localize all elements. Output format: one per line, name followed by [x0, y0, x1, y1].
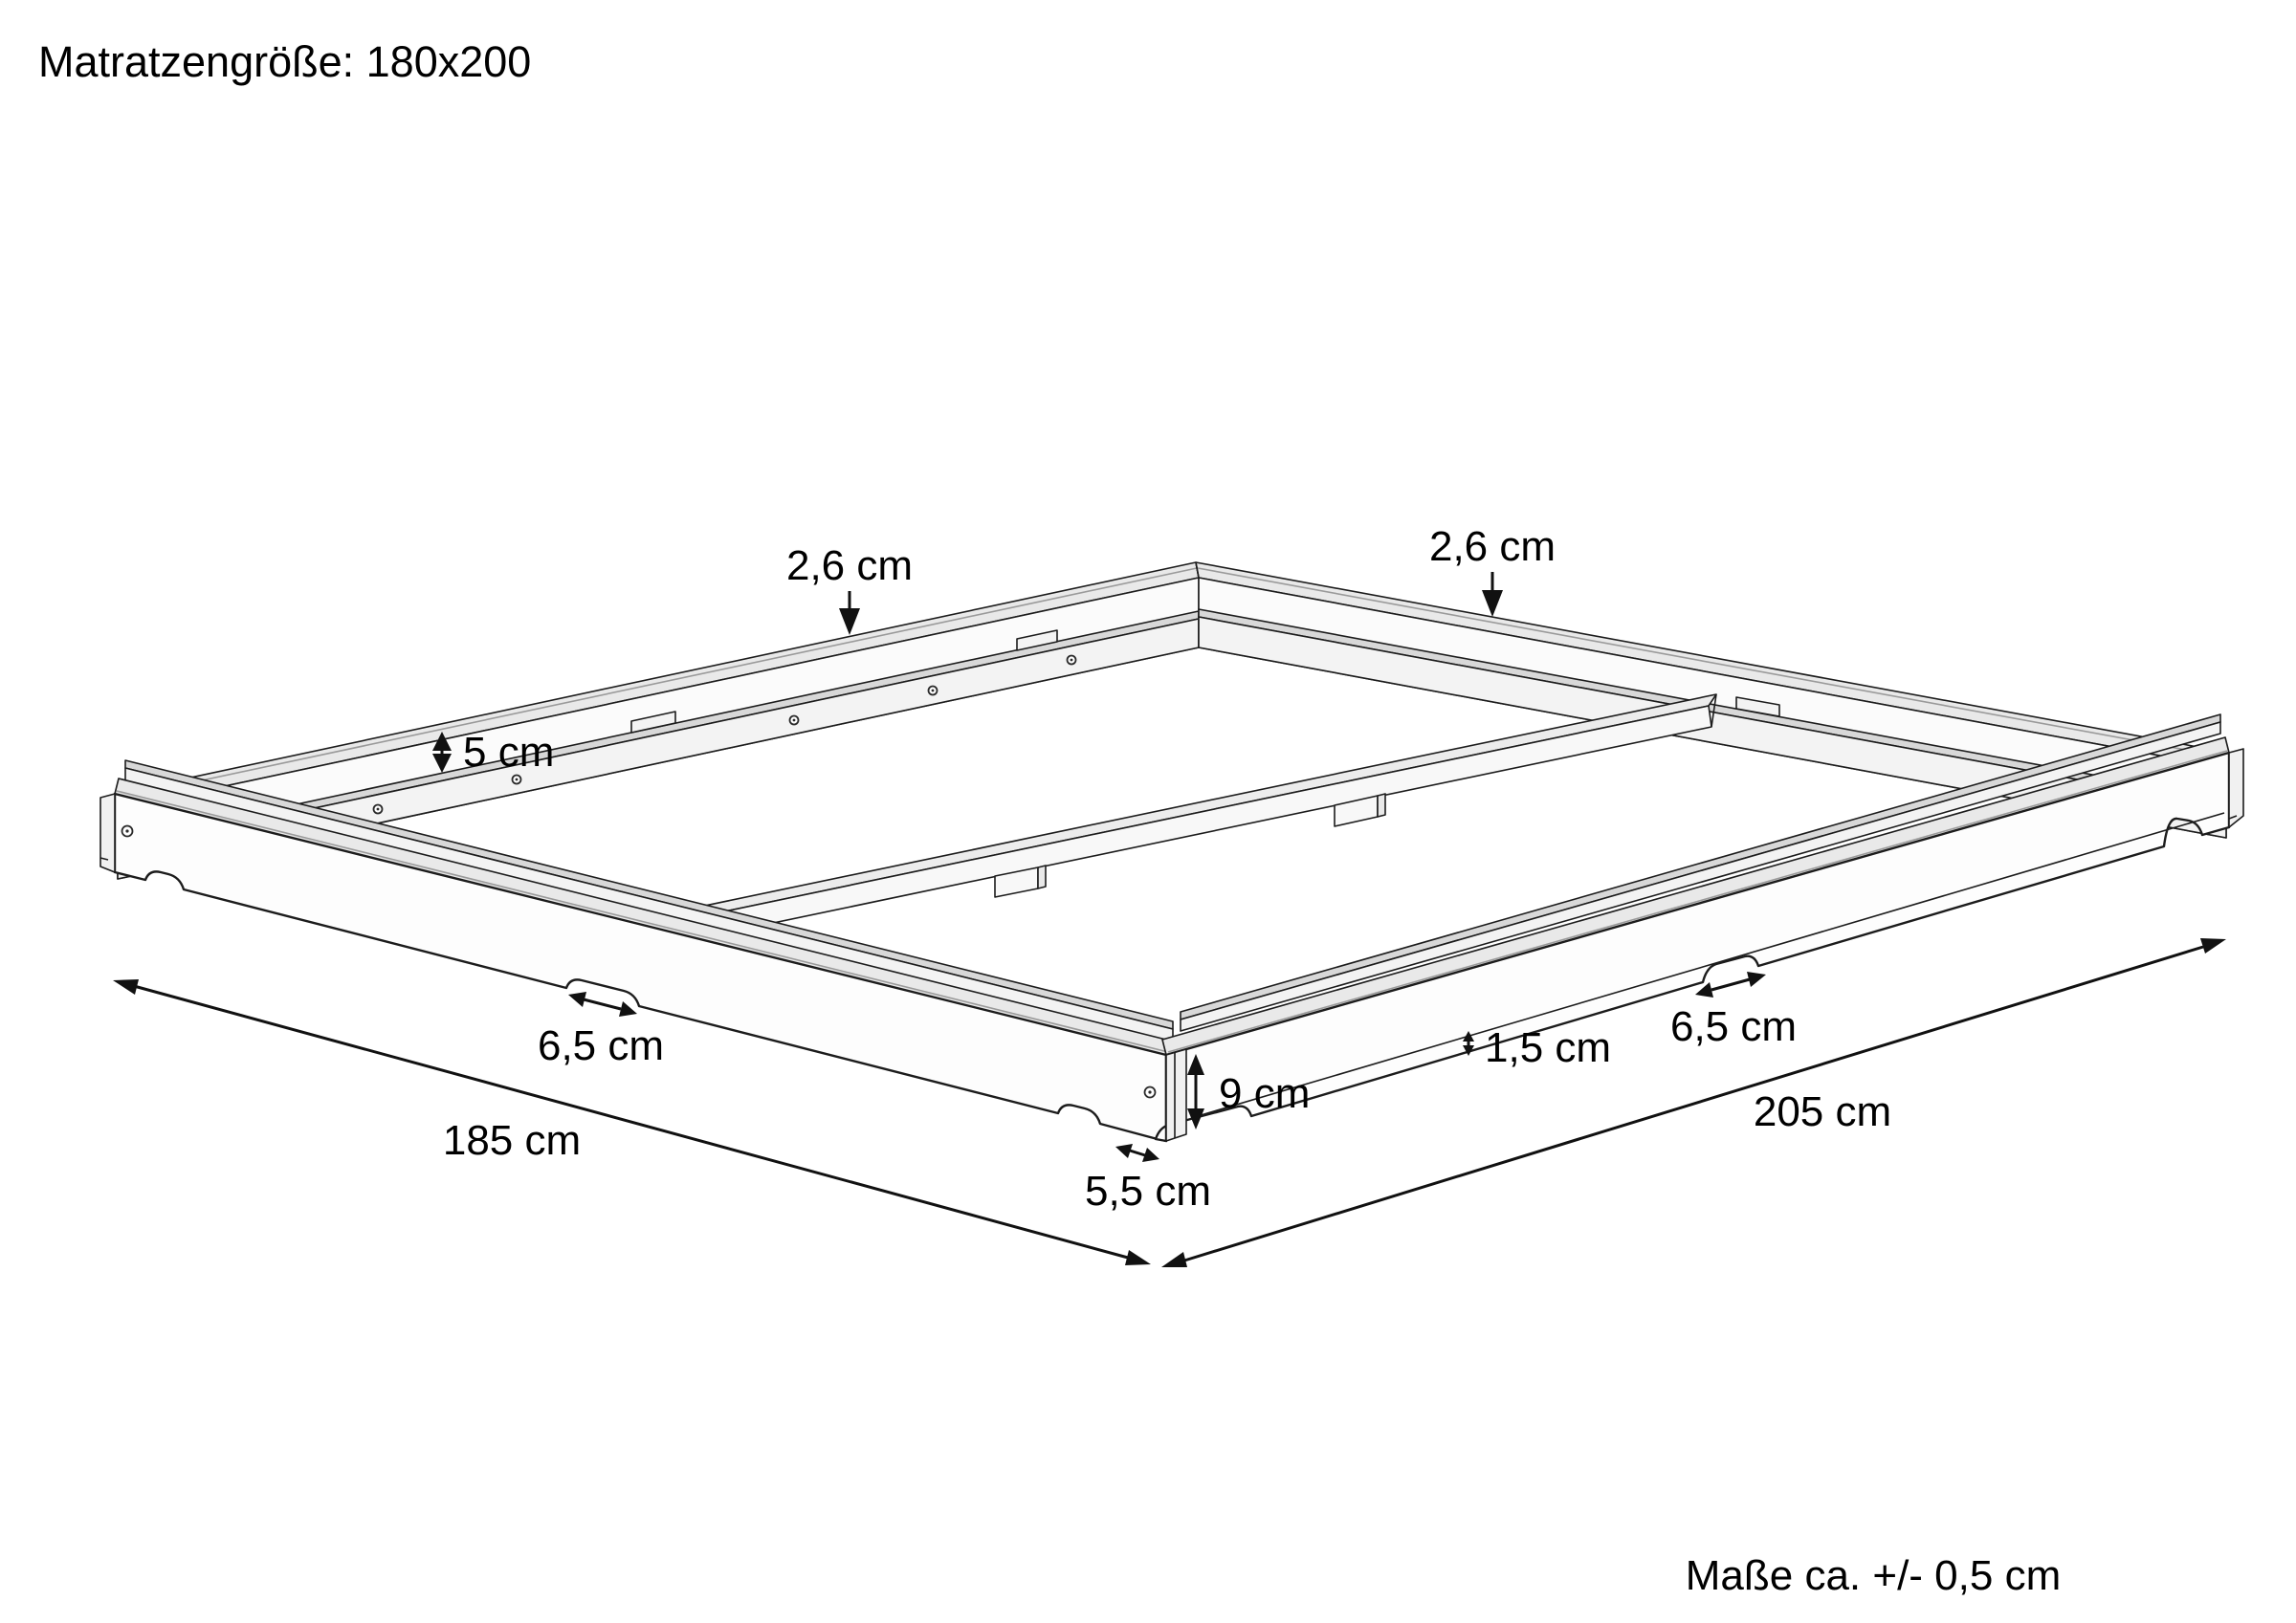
arrow-down-icon — [1482, 590, 1503, 617]
dimension-label: 6,5 cm — [538, 1022, 664, 1069]
front-left-rail — [115, 779, 1170, 1141]
dimension-label: 1,5 cm — [1485, 1024, 1611, 1071]
arrow-downright-icon — [619, 1001, 637, 1017]
page-title: Matratzengröße: 180x200 — [38, 37, 531, 86]
front-right-rail-outer-face — [1156, 753, 2229, 1141]
arrow-downright-icon — [1125, 1250, 1151, 1265]
left-corner-end-face — [100, 794, 115, 872]
near-corner-end-face — [1166, 1049, 1186, 1141]
technical-drawing-page: Matratzengröße: 180x200 — [0, 0, 2296, 1623]
dimension-corner-foot: 5,5 cm — [1085, 1144, 1211, 1215]
arrow-downright-icon — [1142, 1148, 1159, 1162]
dimension-label: 185 cm — [443, 1117, 581, 1164]
corner-screw-dot — [125, 829, 128, 832]
arrow-down-icon — [839, 608, 860, 635]
front-left-rail-chamfer — [117, 791, 1168, 1052]
dimension-label: 2,6 cm — [1429, 523, 1556, 570]
dimension-label: 9 cm — [1219, 1070, 1310, 1117]
bed-frame-diagram: Matratzengröße: 180x200 — [0, 0, 2296, 1623]
tolerance-note: Maße ca. +/- 0,5 cm — [1686, 1552, 2061, 1599]
beam-top-face — [670, 694, 1716, 923]
dimension-ledge-reveal: 1,5 cm — [1463, 1024, 1611, 1071]
arrow-upright-icon — [1747, 972, 1766, 987]
back-left-rail-top-face — [115, 562, 1199, 809]
dimension-label: 6,5 cm — [1670, 1003, 1797, 1050]
bed-frame — [100, 562, 2243, 1141]
dimension-thickness-back-left: 2,6 cm — [786, 542, 913, 635]
dimension-label: 5,5 cm — [1085, 1168, 1211, 1215]
dimension-label: 2,6 cm — [786, 542, 913, 589]
dimension-label: 5 cm — [463, 729, 554, 776]
dimension-label: 205 cm — [1754, 1088, 1891, 1135]
corner-screw-dot — [1148, 1090, 1151, 1093]
dimension-thickness-back-right: 2,6 cm — [1429, 523, 1556, 617]
arrow-upright-icon — [2200, 938, 2226, 954]
arrow-downleft-icon — [1161, 1252, 1187, 1267]
